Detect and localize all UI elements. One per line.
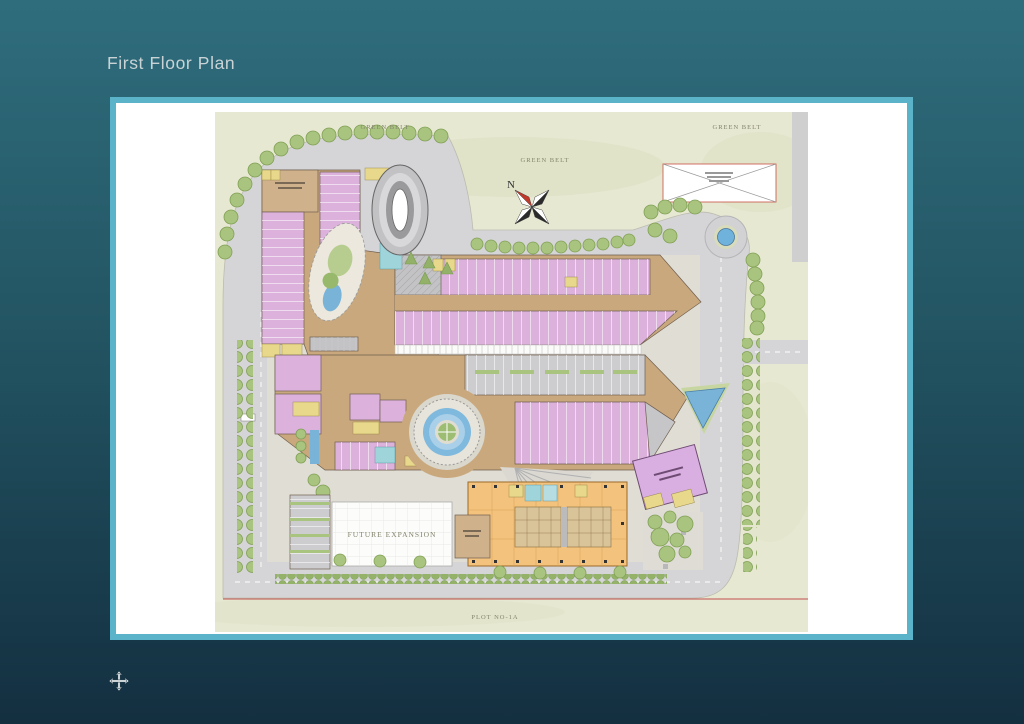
office-block	[468, 482, 627, 566]
central-fountain	[401, 386, 493, 478]
floor-plan-image[interactable]: FUTURE EXPANSION	[215, 112, 808, 632]
future-expansion-label: FUTURE EXPANSION	[348, 530, 437, 539]
roundabout	[705, 216, 747, 258]
pocket-garden	[643, 511, 703, 570]
pool-strip	[310, 430, 319, 464]
green-belt-label-right: GREEN BELT	[713, 124, 762, 131]
green-belt-label-inner: GREEN BELT	[521, 157, 570, 164]
move-cursor-icon	[108, 670, 130, 692]
reserved-plot-box	[663, 164, 776, 202]
hedge-row	[275, 574, 667, 584]
parking-bays	[290, 495, 330, 569]
plot-number-label: PLOT NO-1A	[471, 614, 518, 621]
pond	[718, 229, 735, 246]
page-title: First Floor Plan	[107, 53, 235, 74]
compass-north-label: N	[507, 179, 515, 191]
floor-plan-card: FUTURE EXPANSION	[110, 97, 913, 640]
green-belt-label-top: GREEN BELT	[361, 124, 410, 131]
parking-ramp	[372, 165, 428, 255]
